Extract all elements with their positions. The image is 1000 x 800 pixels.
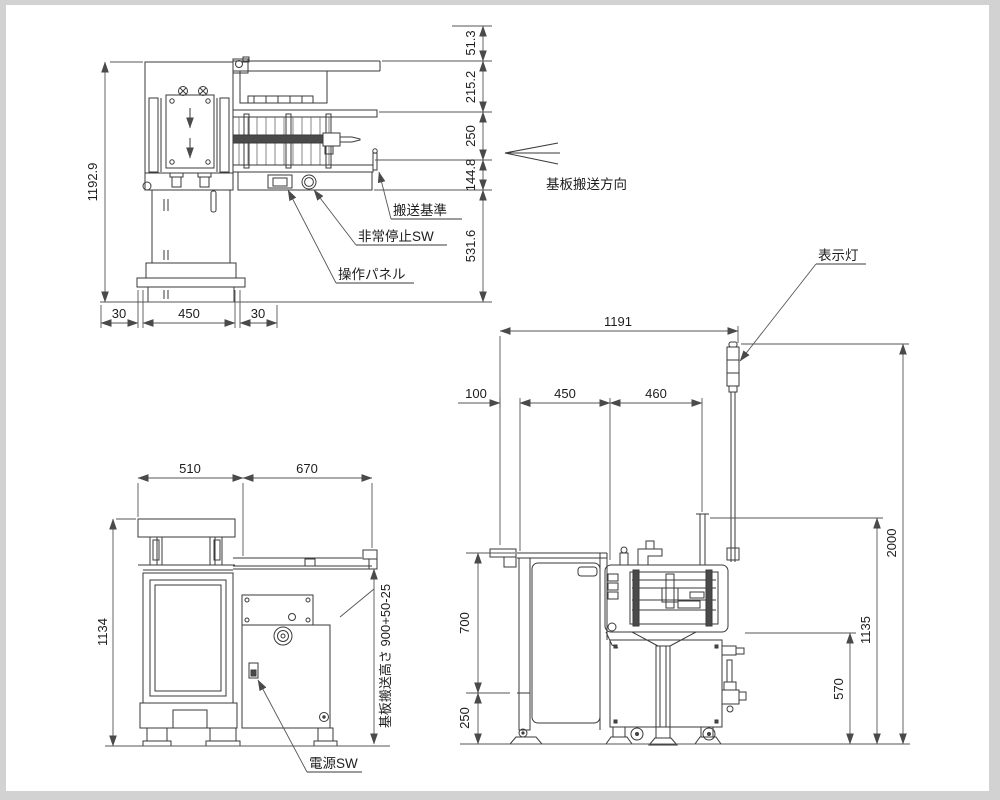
dim-side-left-lower: 250 — [457, 707, 472, 729]
side-door — [532, 563, 600, 723]
emergency-stop-label: 非常停止SW — [358, 228, 434, 244]
dim-side-right-outer: 2000 — [884, 529, 899, 558]
drive-unit — [240, 71, 327, 103]
air-regulator-units — [722, 646, 746, 712]
dim-front-top-left: 510 — [179, 461, 201, 476]
dim-side-left-upper: 700 — [457, 612, 472, 634]
transport-reference-label: 搬送基準 — [393, 202, 447, 218]
operation-panel-label: 操作パネル — [338, 267, 406, 282]
pulley-icon — [274, 627, 292, 645]
dim-upper-base-center: 450 — [178, 306, 200, 321]
dim-side-right-inner: 570 — [831, 678, 846, 700]
screw-cross-icons — [179, 87, 208, 96]
dim-side-overall-width: 1191 — [604, 314, 632, 329]
cad-drawing: 1192.9 30 450 30 51.3 215.2 250 144.8 53… — [0, 0, 1000, 800]
transport-direction: 基板搬送方向 — [505, 143, 627, 192]
dim-side-top-3: 460 — [645, 386, 667, 401]
dim-side-top-2: 450 — [554, 386, 576, 401]
dim-upper-right-4: 144.8 — [463, 159, 478, 192]
callout-transport-reference: 搬送基準 — [379, 172, 462, 219]
front-door — [143, 573, 233, 703]
dim-upper-right-5: 531.6 — [463, 230, 478, 263]
power-switch-label: 電源SW — [309, 756, 358, 771]
conveyor-shaft — [233, 135, 323, 143]
front-view-machine — [138, 519, 377, 746]
drawing-sheet: 1192.9 30 450 30 51.3 215.2 250 144.8 53… — [0, 0, 1000, 800]
dim-upper-right-2: 215.2 — [463, 71, 478, 104]
clamp-arm — [638, 541, 662, 565]
conveyor-beam — [233, 550, 377, 569]
side-view-machine — [490, 342, 746, 745]
transport-reference-pin — [373, 153, 377, 170]
dim-front-overall-height: 1134 — [95, 618, 110, 646]
upper-view-machine — [137, 57, 380, 302]
dim-front-top-right: 670 — [296, 461, 318, 476]
dim-upper-base-right: 30 — [251, 306, 265, 321]
dim-side-top-1: 100 — [465, 386, 487, 401]
side-view-dimensions: 1191 100 450 460 700 250 570 1135 — [457, 314, 910, 744]
transport-direction-label: 基板搬送方向 — [546, 176, 627, 192]
dim-side-right-middle: 1135 — [858, 616, 873, 644]
motor-mount-panel — [242, 595, 313, 625]
dim-upper-right-1: 51.3 — [463, 30, 478, 55]
dim-upper-base-left: 30 — [112, 306, 126, 321]
pedestal-handle — [211, 191, 216, 212]
dim-transfer-height: 基板搬送高さ 900+50-25 — [378, 584, 393, 728]
indicator-light-tower — [727, 342, 739, 562]
dim-upper-overall-height: 1192.9 — [85, 163, 100, 202]
dim-upper-right-3: 250 — [463, 125, 478, 147]
conveyor-arm — [233, 61, 380, 190]
indicator-light-label: 表示灯 — [818, 248, 859, 263]
callout-power-switch: 電源SW — [258, 680, 362, 772]
